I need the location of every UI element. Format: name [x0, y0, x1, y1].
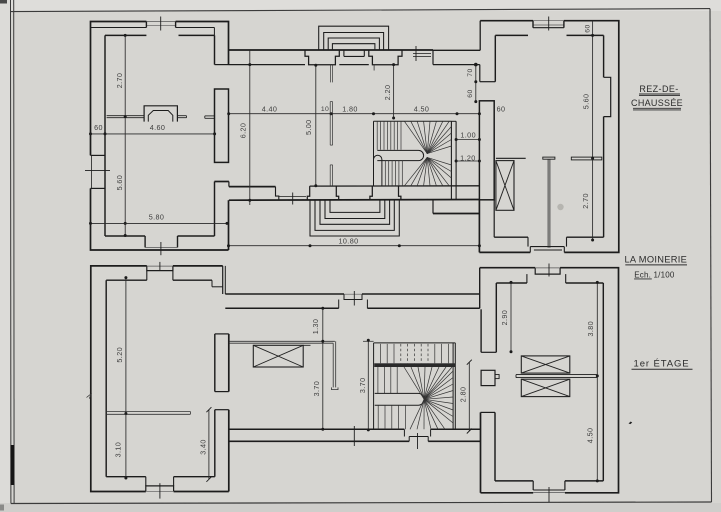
- svg-text:1.00: 1.00: [460, 131, 476, 140]
- svg-text:3.70: 3.70: [312, 381, 321, 397]
- svg-text:3.10: 3.10: [114, 442, 123, 458]
- svg-text:5.60: 5.60: [582, 94, 591, 110]
- svg-text:4.60: 4.60: [150, 123, 166, 132]
- svg-text:10.80: 10.80: [339, 236, 359, 245]
- svg-text:1.20: 1.20: [460, 154, 476, 163]
- svg-text:60: 60: [584, 24, 591, 32]
- svg-text:5.60: 5.60: [115, 175, 124, 191]
- svg-text:3.40: 3.40: [199, 439, 208, 455]
- svg-text:2.90: 2.90: [500, 310, 509, 326]
- svg-text:2.70: 2.70: [115, 73, 124, 89]
- svg-text:4.50: 4.50: [585, 428, 594, 444]
- svg-text:3.80: 3.80: [586, 321, 595, 337]
- svg-text:4.40: 4.40: [262, 105, 278, 114]
- svg-text:LA MOINERIE: LA MOINERIE: [624, 255, 687, 265]
- svg-text:60: 60: [497, 104, 506, 113]
- svg-text:5.00: 5.00: [304, 119, 313, 135]
- svg-text:6.20: 6.20: [239, 123, 248, 139]
- svg-text:5.80: 5.80: [149, 213, 165, 222]
- svg-text:2.70: 2.70: [581, 193, 590, 209]
- svg-text:60: 60: [94, 123, 103, 132]
- svg-text:1er ÉTAGE: 1er ÉTAGE: [634, 359, 690, 370]
- svg-text:2.20: 2.20: [383, 85, 392, 101]
- svg-text:REZ-DE-: REZ-DE-: [639, 84, 678, 94]
- svg-text:1.30: 1.30: [311, 319, 320, 335]
- svg-text:1.80: 1.80: [342, 105, 358, 114]
- svg-text:10: 10: [321, 106, 329, 113]
- svg-text:70: 70: [467, 68, 474, 76]
- svg-text:3.70: 3.70: [358, 378, 367, 394]
- svg-text:Ech. 1/100: Ech. 1/100: [634, 270, 675, 279]
- svg-text:5.20: 5.20: [115, 347, 124, 363]
- svg-text:2.80: 2.80: [459, 387, 468, 403]
- svg-text:60: 60: [467, 89, 474, 97]
- svg-text:4.50: 4.50: [414, 104, 430, 113]
- svg-text:CHAUSSÉE: CHAUSSÉE: [631, 98, 683, 108]
